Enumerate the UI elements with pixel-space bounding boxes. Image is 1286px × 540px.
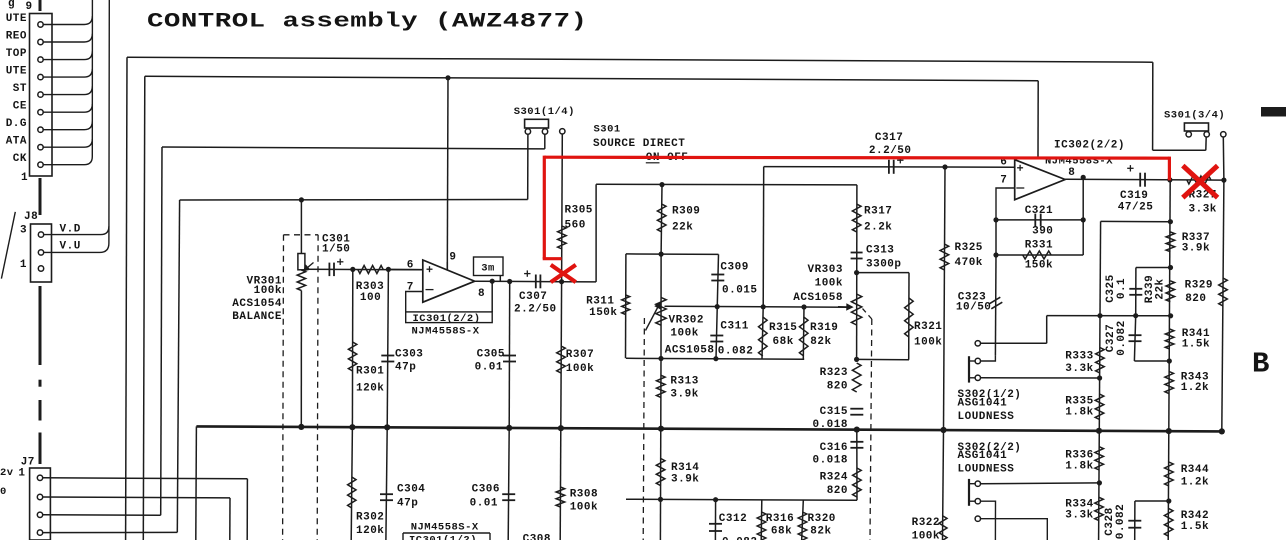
svg-text:C313: C313: [866, 244, 894, 256]
svg-text:C309: C309: [720, 262, 748, 274]
svg-text:820: 820: [1185, 293, 1206, 305]
svg-text:100k: 100k: [815, 278, 843, 290]
svg-text:R311: R311: [586, 296, 614, 308]
svg-text:D.G: D.G: [6, 118, 27, 130]
svg-text:3.9k: 3.9k: [670, 389, 698, 401]
svg-text:3: 3: [20, 225, 27, 237]
svg-text:0.01: 0.01: [475, 362, 503, 374]
svg-text:B: B: [1252, 348, 1270, 381]
svg-text:3m: 3m: [481, 263, 495, 275]
svg-text:R313: R313: [670, 376, 698, 388]
svg-text:R305: R305: [565, 204, 593, 216]
svg-text:C311: C311: [720, 321, 748, 333]
svg-text:C308: C308: [523, 534, 551, 540]
svg-text:CONTROL assembly (AWZ4877): CONTROL assembly (AWZ4877): [147, 10, 587, 33]
svg-text:100k: 100k: [912, 531, 940, 540]
svg-text:R314: R314: [671, 462, 699, 474]
svg-text:R322: R322: [912, 517, 940, 529]
svg-text:2.2k: 2.2k: [864, 222, 892, 234]
svg-text:1.8k: 1.8k: [1065, 407, 1093, 419]
svg-text:82k: 82k: [810, 526, 831, 538]
svg-text:IC301(1/2): IC301(1/2): [409, 535, 477, 540]
svg-text:3.9k: 3.9k: [671, 474, 699, 486]
svg-text:0.01: 0.01: [470, 498, 498, 510]
svg-text:ATA: ATA: [6, 136, 27, 148]
svg-text:8: 8: [478, 288, 485, 300]
svg-text:3.3k: 3.3k: [1065, 510, 1093, 522]
svg-text:390: 390: [1032, 225, 1053, 237]
svg-text:120k: 120k: [356, 525, 384, 537]
svg-text:R316: R316: [766, 513, 794, 525]
svg-text:470k: 470k: [955, 257, 983, 269]
svg-text:R301: R301: [356, 366, 384, 378]
svg-text:R303: R303: [356, 281, 384, 293]
svg-text:0.015: 0.015: [722, 285, 758, 297]
svg-text:TOP: TOP: [6, 48, 27, 60]
svg-text:0.082: 0.082: [1116, 320, 1128, 356]
svg-text:0.082: 0.082: [722, 537, 758, 540]
svg-text:NJM4558S-X: NJM4558S-X: [411, 522, 479, 534]
svg-text:68k: 68k: [773, 336, 794, 348]
svg-text:0.018: 0.018: [812, 455, 848, 467]
svg-text:82k: 82k: [810, 336, 831, 348]
svg-text:1.2k: 1.2k: [1181, 476, 1209, 488]
svg-text:V.U: V.U: [60, 241, 81, 253]
svg-text:R325: R325: [955, 242, 983, 254]
svg-text:R307: R307: [566, 349, 594, 361]
svg-text:ACS1058: ACS1058: [793, 292, 843, 304]
svg-text:1: 1: [21, 172, 28, 184]
svg-text:100k: 100k: [670, 328, 698, 340]
svg-text:R333: R333: [1065, 351, 1093, 363]
svg-text:SOURCE DIRECT: SOURCE DIRECT: [593, 138, 685, 150]
svg-text:ASG1041: ASG1041: [958, 398, 1008, 410]
svg-text:150k: 150k: [1025, 259, 1053, 271]
svg-text:CK: CK: [13, 153, 27, 165]
svg-text:R320: R320: [808, 513, 836, 525]
svg-text:J8: J8: [24, 211, 38, 223]
svg-text:IC301(2/2): IC301(2/2): [413, 313, 481, 325]
svg-text:C319: C319: [1120, 190, 1148, 202]
svg-text:1/50: 1/50: [322, 243, 350, 255]
svg-text:C315: C315: [820, 406, 848, 418]
svg-text:0.082: 0.082: [718, 346, 754, 358]
svg-text:2.2/50: 2.2/50: [869, 145, 912, 157]
svg-text:ACS1058: ACS1058: [665, 344, 715, 356]
svg-text:R319: R319: [810, 322, 838, 334]
svg-text:100k: 100k: [254, 285, 282, 297]
svg-text:1.8k: 1.8k: [1065, 461, 1093, 473]
svg-text:2.2/50: 2.2/50: [514, 304, 557, 316]
svg-text:0.1: 0.1: [1116, 278, 1128, 299]
svg-text:S301(3/4): S301(3/4): [1164, 110, 1225, 122]
svg-text:47/25: 47/25: [1118, 202, 1154, 214]
svg-text:120k: 120k: [356, 383, 384, 395]
svg-text:R317: R317: [864, 206, 892, 218]
svg-text:R308: R308: [570, 489, 598, 501]
svg-text:ASG1041: ASG1041: [958, 450, 1008, 462]
svg-text:47p: 47p: [397, 498, 418, 510]
svg-text:9: 9: [26, 1, 33, 13]
svg-text:CE: CE: [13, 101, 27, 113]
svg-text:VR303: VR303: [807, 264, 843, 276]
svg-text:IC302(2/2): IC302(2/2): [1054, 140, 1125, 152]
svg-text:C305: C305: [477, 349, 505, 361]
svg-text:BALANCE: BALANCE: [232, 311, 282, 323]
svg-text:C312: C312: [719, 513, 747, 525]
svg-text:10/50: 10/50: [956, 301, 992, 313]
svg-text:R331: R331: [1025, 239, 1053, 251]
svg-text:R302: R302: [356, 512, 384, 524]
svg-text:8: 8: [1068, 167, 1075, 179]
svg-text:1.5k: 1.5k: [1182, 339, 1210, 351]
svg-text:LOUDNESS: LOUDNESS: [958, 464, 1015, 476]
svg-text:UTE: UTE: [6, 13, 27, 25]
svg-text:820: 820: [827, 485, 848, 497]
svg-text:100k: 100k: [570, 502, 598, 514]
svg-text:R344: R344: [1181, 464, 1209, 476]
svg-text:68k: 68k: [771, 526, 792, 538]
svg-text:3.3k: 3.3k: [1065, 363, 1093, 375]
svg-text:C303: C303: [395, 349, 423, 361]
svg-text:C304: C304: [397, 484, 425, 496]
svg-text:C307: C307: [519, 291, 547, 303]
svg-text:0.018: 0.018: [812, 419, 848, 431]
svg-text:C306: C306: [472, 484, 500, 496]
svg-text:100k: 100k: [566, 363, 594, 375]
svg-text:LOUDNESS: LOUDNESS: [958, 411, 1015, 423]
svg-text:V.D: V.D: [60, 224, 81, 236]
svg-text:0: 0: [0, 486, 7, 498]
svg-text:1: 1: [18, 468, 25, 480]
svg-text:560: 560: [565, 220, 586, 232]
svg-text:R309: R309: [672, 206, 700, 218]
svg-text:R323: R323: [820, 367, 848, 379]
svg-text:VR302: VR302: [669, 315, 705, 327]
svg-text:100: 100: [360, 292, 381, 304]
svg-text:g: g: [8, 0, 15, 10]
svg-text:R324: R324: [820, 472, 848, 484]
svg-text:R321: R321: [914, 321, 942, 333]
svg-text:3300p: 3300p: [866, 259, 902, 271]
svg-text:9: 9: [449, 252, 456, 264]
svg-text:22k: 22k: [672, 222, 693, 234]
svg-text:22k: 22k: [1155, 278, 1167, 299]
svg-text:1.5k: 1.5k: [1181, 521, 1209, 533]
svg-text:ACS1054: ACS1054: [232, 298, 282, 310]
svg-text:C316: C316: [820, 442, 848, 454]
svg-text:REO: REO: [6, 31, 27, 43]
svg-text:0.082: 0.082: [1115, 504, 1127, 540]
svg-text:7: 7: [1000, 175, 1007, 187]
svg-text:820: 820: [827, 381, 848, 393]
svg-text:C317: C317: [875, 132, 903, 144]
svg-text:S301(1/4): S301(1/4): [514, 106, 575, 118]
svg-text:UTE: UTE: [6, 66, 27, 78]
svg-text:3.9k: 3.9k: [1182, 243, 1210, 255]
svg-text:3.3k: 3.3k: [1189, 204, 1217, 216]
svg-text:47p: 47p: [395, 362, 416, 374]
svg-text:1: 1: [20, 259, 27, 271]
svg-text:1.2k: 1.2k: [1181, 382, 1209, 394]
svg-text:150k: 150k: [589, 307, 617, 319]
svg-text:NJM4558S-X: NJM4558S-X: [412, 325, 480, 337]
svg-text:R329: R329: [1185, 280, 1213, 292]
svg-text:S301: S301: [594, 124, 621, 136]
svg-text:C321: C321: [1025, 205, 1053, 217]
svg-text:2v: 2v: [0, 467, 14, 479]
svg-text:100k: 100k: [914, 337, 942, 349]
svg-text:R315: R315: [769, 322, 797, 334]
svg-text:ST: ST: [13, 83, 27, 95]
